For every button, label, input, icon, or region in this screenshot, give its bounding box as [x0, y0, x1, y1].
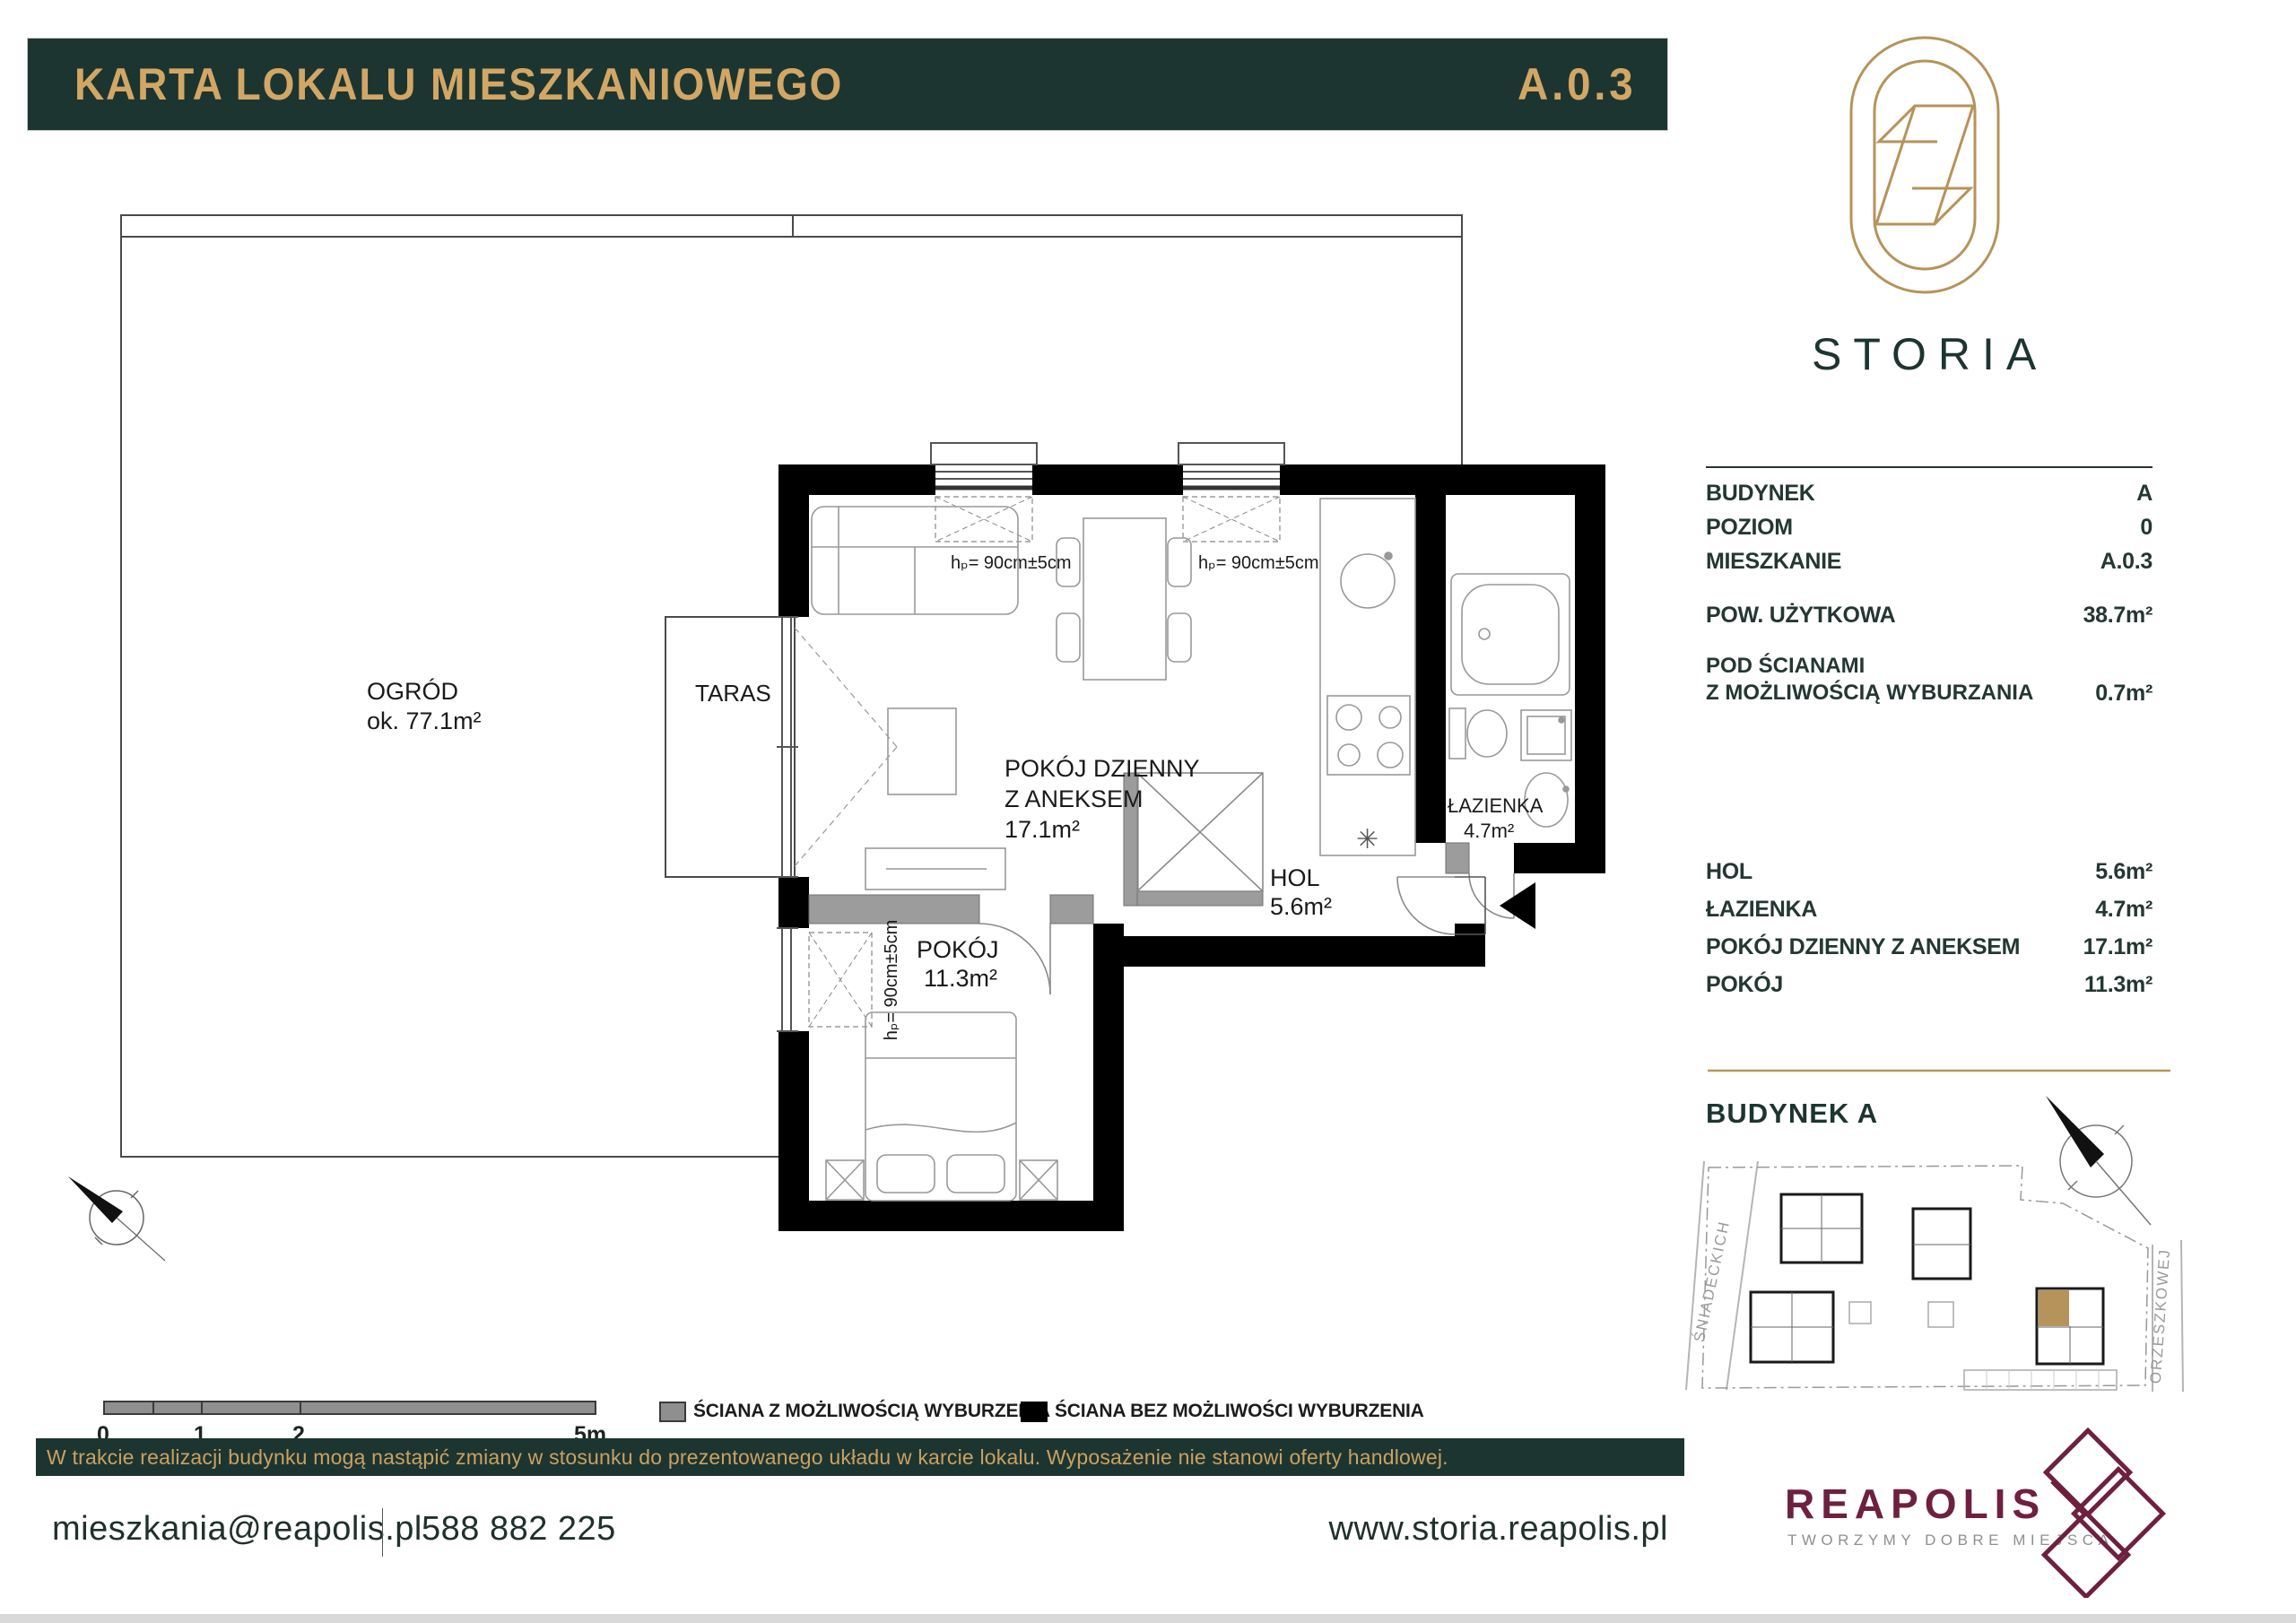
- usable-area-value: 38.7m²: [2083, 603, 2152, 629]
- garden-label: OGRÓD: [367, 677, 458, 705]
- plan-compass-icon: [68, 1176, 165, 1261]
- apartment-row: MIESZKANIE A.0.3: [1706, 549, 2152, 575]
- street-right-label: ORZESZKOWEJ: [2147, 1247, 2174, 1384]
- reapolis-logo-text: REAPOLIS: [1785, 1480, 2046, 1528]
- demolition-label-2: Z MOŻLIWOŚCIĄ WYBURZANIA: [1706, 680, 2033, 707]
- entry-arrow-icon: [1500, 882, 1535, 929]
- room-row-hol: HOL 5.6m²: [1706, 859, 2152, 885]
- room-hol-label: HOL: [1706, 859, 1752, 885]
- hall-wardrobe: [1137, 773, 1263, 891]
- dining-table-and-chairs: [1057, 518, 1191, 680]
- living-room-label-1: POKÓJ DZIENNY: [1004, 754, 1200, 782]
- demolition-area-row: POD ŚCIANAMI Z MOŻLIWOŚCIĄ WYBURZANIA 0.…: [1706, 653, 2152, 707]
- coffee-table: [888, 708, 956, 794]
- legend-demolishable: ŚCIANA Z MOŻLIWOŚCIĄ WYBURZENIA: [659, 1401, 1050, 1422]
- room-pokoj-dzienny-label: POKÓJ DZIENNY Z ANEKSEM: [1706, 934, 2020, 960]
- level-label: POZIOM: [1706, 515, 1793, 541]
- window-top-1: [931, 443, 1037, 542]
- nightstand-right: [1020, 1160, 1057, 1200]
- unit-code: A.0.3: [1518, 39, 1637, 130]
- terrace-outline: [665, 617, 795, 877]
- building-row: BUDYNEK A: [1706, 481, 2152, 507]
- bedroom-window: [777, 928, 872, 1031]
- demolition-value: 0.7m²: [2095, 681, 2152, 707]
- demolition-label-1: POD ŚCIANAMI: [1706, 653, 2033, 680]
- footer-email: mieszkania@reapolis.pl: [52, 1510, 422, 1549]
- bathroom-door: [1469, 873, 1514, 918]
- apartment-label: MIESZKANIE: [1706, 549, 1841, 575]
- site-map-compass-icon: [2046, 1096, 2151, 1225]
- footer-separator: [382, 1508, 383, 1557]
- living-room-label-2: Z ANEKSEM: [1004, 785, 1144, 812]
- garden-area: ok. 77.1m²: [367, 707, 482, 734]
- legend-gray-swatch: [659, 1402, 686, 1422]
- footer-phone: 588 882 225: [422, 1510, 616, 1549]
- site-map-heading: BUDYNEK A: [1706, 1098, 1878, 1129]
- legend-black-swatch: [1021, 1402, 1048, 1422]
- site-map-buildings: [1751, 1194, 2117, 1390]
- room-pokoj-label: POKÓJ: [1706, 972, 1783, 998]
- living-room-area: 17.1m²: [1004, 816, 1080, 843]
- terrace-label: TARAS: [695, 680, 771, 707]
- site-map: BUDYNEK A ŚNIADECKICH ORZESZKOWEJ: [1677, 1058, 2233, 1435]
- hall-label: HOL: [1270, 864, 1320, 891]
- window-1-height-label: hₚ= 90cm±5cm: [951, 553, 1072, 573]
- toilet: [1449, 708, 1507, 759]
- room-row-pokoj: POKÓJ 11.3m²: [1706, 972, 2152, 998]
- footer-website: www.storia.reapolis.pl: [1256, 1510, 1668, 1549]
- bedroom-area: 11.3m²: [924, 965, 997, 992]
- apartment-card-page: KARTA LOKALU MIESZKANIOWEGO A.0.3 STORIA…: [0, 0, 2296, 1623]
- level-row: POZIOM 0: [1706, 515, 2152, 541]
- room-row-pokoj-dzienny: POKÓJ DZIENNY Z ANEKSEM 17.1m²: [1706, 934, 2152, 960]
- scale-bar: [103, 1401, 596, 1415]
- hall-area: 5.6m²: [1270, 893, 1332, 920]
- bottom-edge-strip: [0, 1614, 2296, 1623]
- room-lazienka-label: ŁAZIENKA: [1706, 897, 1817, 923]
- reapolis-logo-diamonds-icon: [2036, 1428, 2170, 1598]
- scale-tick: [300, 1402, 301, 1413]
- storia-logo-monogram: [1821, 27, 2029, 314]
- room-lazienka-area: 4.7m²: [2095, 897, 2152, 923]
- disclaimer-bar: W trakcie realizacji budynku mogą nastąp…: [36, 1438, 1684, 1476]
- floor-plan: OGRÓD ok. 77.1m² TARAS: [54, 206, 1704, 1354]
- bedroom-label: POKÓJ: [917, 935, 999, 963]
- washing-machine: [1521, 710, 1571, 760]
- room-pokoj-area: 11.3m²: [2084, 972, 2152, 998]
- window-top-2: [1178, 443, 1284, 542]
- usable-area-row: POW. UŻYTKOWA 38.7m²: [1706, 603, 2152, 629]
- bathroom-label: ŁAZIENKA: [1448, 794, 1544, 817]
- legend-demolishable-label: ŚCIANA Z MOŻLIWOŚCIĄ WYBURZENIA: [693, 1401, 1050, 1422]
- window-2-height-label: hₚ= 90cm±5cm: [1198, 553, 1319, 573]
- brand-name: STORIA: [1812, 328, 2038, 380]
- level-value: 0: [2140, 515, 2152, 541]
- usable-area-label: POW. UŻYTKOWA: [1706, 603, 1895, 629]
- kitchen-counter: [1320, 499, 1415, 855]
- header-bar: KARTA LOKALU MIESZKANIOWEGO A.0.3: [27, 38, 1668, 131]
- nightstand-left: [826, 1160, 864, 1200]
- kitchen-symbol: ✳: [1356, 825, 1378, 855]
- page-title: KARTA LOKALU MIESZKANIOWEGO: [74, 39, 843, 130]
- room-row-lazienka: ŁAZIENKA 4.7m²: [1706, 897, 2152, 923]
- panel-top-rule: [1706, 466, 2152, 468]
- apartment-value: A.0.3: [2100, 549, 2152, 575]
- room-pokoj-dzienny-area: 17.1m²: [2083, 934, 2152, 960]
- bedroom-window-height-label: hₚ= 90cm±5cm: [882, 920, 901, 1041]
- site-map-highlighted-unit: [2039, 1290, 2069, 1326]
- room-hol-area: 5.6m²: [2095, 859, 2152, 885]
- legend-structural-label: ŚCIANA BEZ MOŻLIWOŚCI WYBURZENIA: [1055, 1401, 1424, 1422]
- bathroom-area: 4.7m²: [1464, 820, 1514, 842]
- legend-structural: ŚCIANA BEZ MOŻLIWOŚCI WYBURZENIA: [1021, 1401, 1424, 1422]
- scale-tick: [152, 1402, 154, 1413]
- building-label: BUDYNEK: [1706, 481, 1815, 507]
- building-value: A: [2136, 481, 2152, 507]
- bathtub: [1451, 574, 1570, 695]
- scale-tick: [201, 1402, 203, 1413]
- tv-bench: [865, 848, 1005, 890]
